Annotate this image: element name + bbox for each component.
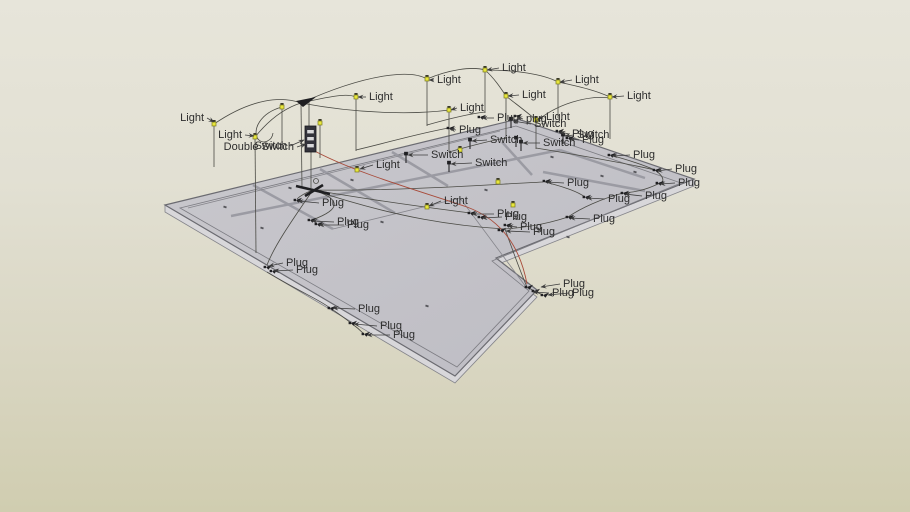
scene-canvas[interactable]: LightLightLightLightLightLightLightLight… xyxy=(0,0,910,512)
light-bulb-icon xyxy=(280,105,284,109)
plug-base-icon xyxy=(608,154,610,156)
light-label-group: Light xyxy=(358,91,393,103)
switch-label[interactable]: Switch xyxy=(543,137,575,149)
plug-base-icon xyxy=(349,322,351,324)
light-label[interactable]: Light xyxy=(460,102,484,114)
light-bulb-icon xyxy=(354,95,358,99)
switch-label[interactable]: Switch xyxy=(490,134,522,146)
plug-symbol[interactable] xyxy=(447,126,455,131)
plug-label[interactable]: Plug xyxy=(505,211,527,223)
plug-base-icon xyxy=(653,169,655,171)
plug-symbol[interactable] xyxy=(478,115,486,120)
light-bulb-icon xyxy=(425,77,429,81)
light-label[interactable]: Light xyxy=(369,91,393,103)
light-bulb-icon xyxy=(511,203,515,207)
plug-label[interactable]: Plug xyxy=(393,329,415,341)
plug-label[interactable]: Plug xyxy=(322,197,344,209)
light-bulb-icon xyxy=(447,108,451,112)
plug-base-icon xyxy=(362,333,364,335)
light-bulb-icon xyxy=(318,121,322,125)
light-label-group: Light xyxy=(612,90,651,102)
floor-slab[interactable] xyxy=(165,119,694,376)
plug-label[interactable]: Plug xyxy=(675,163,697,175)
plug-base-icon xyxy=(556,130,558,132)
plug-base-icon xyxy=(498,229,500,231)
plug-base-icon xyxy=(264,266,266,268)
plug-base-icon xyxy=(308,219,310,221)
light-label[interactable]: Light xyxy=(522,89,546,101)
light-fixture[interactable] xyxy=(425,203,429,209)
plug-label[interactable]: Plug xyxy=(497,112,519,124)
double-switch-panel[interactable] xyxy=(305,126,316,152)
light-fixture[interactable] xyxy=(318,119,322,125)
plug-base-icon xyxy=(478,216,480,218)
light-label[interactable]: Light xyxy=(627,90,651,102)
light-fixture[interactable] xyxy=(556,78,560,84)
light-bulb-icon xyxy=(496,180,500,184)
light-label[interactable]: Light xyxy=(437,74,461,86)
light-bulb-icon xyxy=(425,205,429,209)
light-fixture[interactable] xyxy=(511,201,515,207)
leader-line xyxy=(451,108,457,110)
plug-label[interactable]: Plug xyxy=(552,287,574,299)
leader-line xyxy=(612,96,624,97)
light-fixture[interactable] xyxy=(355,166,359,172)
plug-label[interactable]: Plug xyxy=(633,149,655,161)
electrical-wire xyxy=(256,107,282,142)
switch-label[interactable]: Switch xyxy=(475,157,507,169)
switch-label[interactable]: Switch xyxy=(431,149,463,161)
light-label[interactable]: Light xyxy=(218,129,242,141)
plug-base-icon xyxy=(504,224,506,226)
plug-base-icon xyxy=(525,286,527,288)
model-viewport[interactable]: LightLightLightLightLightLightLightLight… xyxy=(0,0,910,512)
plug-base-icon xyxy=(478,116,480,118)
leader-line xyxy=(245,135,254,136)
light-fixture[interactable] xyxy=(504,92,508,98)
electrical-wire xyxy=(214,100,301,124)
leader-line xyxy=(508,95,519,96)
floor-slab-layer xyxy=(165,119,694,383)
plug-label[interactable]: Plug xyxy=(459,124,481,136)
switch-label[interactable]: Switch xyxy=(534,118,566,130)
light-label-group: Light xyxy=(429,74,461,86)
light-fixture[interactable] xyxy=(425,75,429,81)
switch-label[interactable]: Switch xyxy=(577,129,609,141)
light-fixture[interactable] xyxy=(483,66,487,72)
panel-slot xyxy=(307,144,314,147)
leader-line xyxy=(533,292,549,293)
plug-base-icon xyxy=(315,223,317,225)
light-label-group: Light xyxy=(560,74,599,86)
light-fixture[interactable] xyxy=(608,93,612,99)
double-switch-label[interactable]: Double Switch xyxy=(224,141,294,153)
plug-label[interactable]: Plug xyxy=(593,213,615,225)
plug-base-icon xyxy=(656,182,658,184)
double-switch-label-group: Double Switch xyxy=(224,141,306,153)
light-bulb-icon xyxy=(355,168,359,172)
plug-arrow-icon xyxy=(364,332,370,337)
light-label-group: Light xyxy=(451,102,484,114)
plug-base-icon xyxy=(328,307,330,309)
plug-label[interactable]: Plug xyxy=(347,219,369,231)
plug-symbol[interactable] xyxy=(541,293,549,298)
light-bulb-icon xyxy=(556,80,560,84)
light-label[interactable]: Light xyxy=(376,159,400,171)
switch-cap-icon xyxy=(404,152,408,156)
light-fixture[interactable] xyxy=(280,103,284,109)
plug-base-icon xyxy=(270,270,272,272)
light-label-group: Light xyxy=(180,112,214,124)
switch-cap-icon xyxy=(447,161,451,165)
plug-base-icon xyxy=(583,196,585,198)
light-bulb-icon xyxy=(212,122,216,126)
panel-slot xyxy=(307,137,314,140)
light-label-group: Light xyxy=(508,89,546,101)
plug-base-icon xyxy=(541,294,543,296)
light-label[interactable]: Light xyxy=(575,74,599,86)
plug-label[interactable]: Plug xyxy=(358,303,380,315)
light-fixture[interactable] xyxy=(447,106,451,112)
plug-base-icon xyxy=(566,216,568,218)
light-fixture[interactable] xyxy=(496,178,500,184)
light-bulb-icon xyxy=(608,95,612,99)
plug-label[interactable]: Plug xyxy=(533,226,555,238)
plug-base-icon xyxy=(447,127,449,129)
switch-cap-icon xyxy=(468,138,472,142)
plug-base-icon xyxy=(294,199,296,201)
plug-label-group: Plug xyxy=(482,112,519,124)
plug-label[interactable]: Plug xyxy=(296,264,318,276)
light-bulb-icon xyxy=(483,68,487,72)
light-label-group: Light xyxy=(487,62,526,74)
plug-label[interactable]: Plug xyxy=(678,177,700,189)
leader-line xyxy=(560,80,572,82)
light-label-group: Light xyxy=(218,129,254,141)
plug-base-icon xyxy=(543,180,545,182)
plug-base-icon xyxy=(468,212,470,214)
panel-slot xyxy=(307,130,314,133)
plug-label[interactable]: Plug xyxy=(567,177,589,189)
light-label[interactable]: Light xyxy=(180,112,204,124)
plug-label[interactable]: Plug xyxy=(645,190,667,202)
plug-label[interactable]: Plug xyxy=(572,287,594,299)
light-label[interactable]: Light xyxy=(502,62,526,74)
plug-arrow-icon xyxy=(480,115,486,120)
light-fixture[interactable] xyxy=(354,93,358,99)
plug-label[interactable]: Plug xyxy=(608,193,630,205)
light-label[interactable]: Light xyxy=(444,195,468,207)
light-bulb-icon xyxy=(504,94,508,98)
